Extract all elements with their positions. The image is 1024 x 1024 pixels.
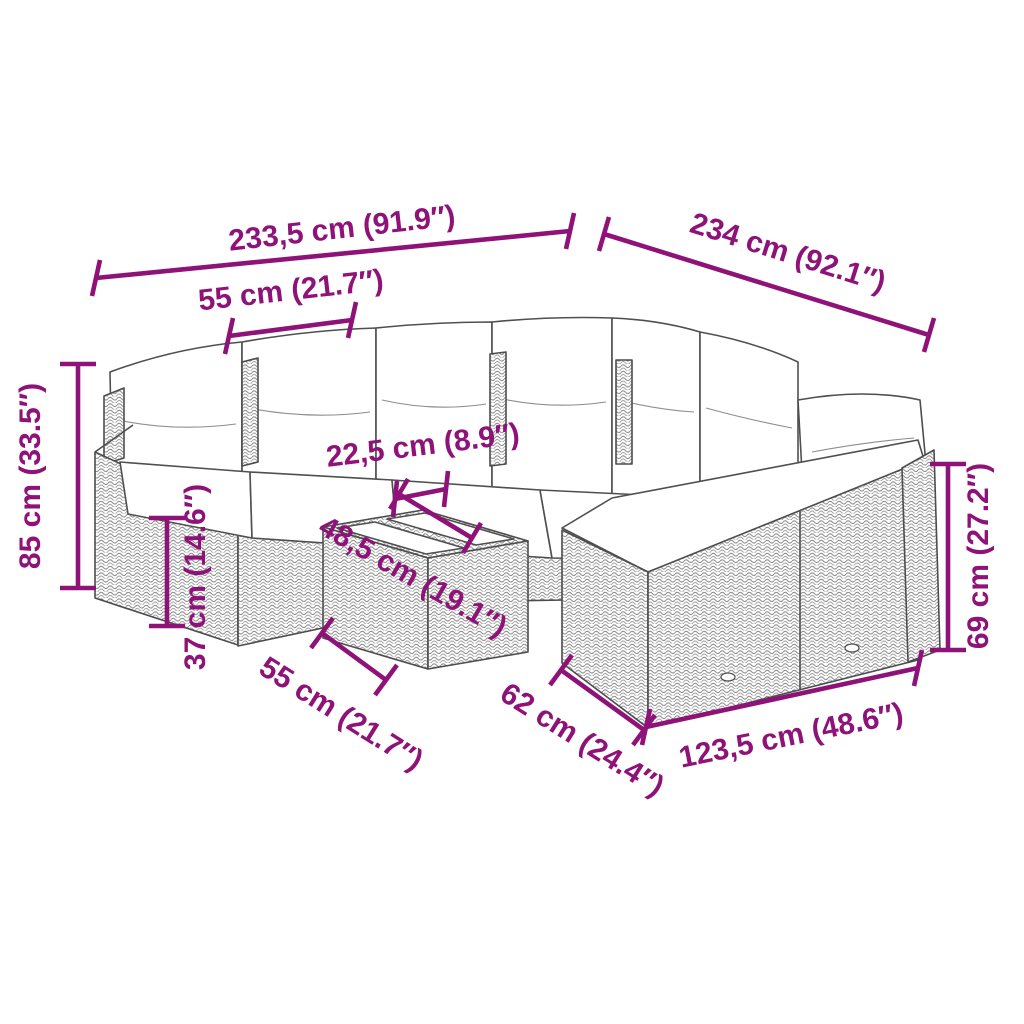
back-cushion	[110, 342, 242, 480]
diagram-svg: 233,5 cm (91.9″) 234 cm (92.1″) 55 cm (2…	[0, 0, 1024, 1024]
dim-overall-height: 85 cm (33.5″)	[14, 364, 96, 588]
product-dimension-diagram: 233,5 cm (91.9″) 234 cm (92.1″) 55 cm (2…	[0, 0, 1024, 1024]
dim-overall-height-label: 85 cm (33.5″)	[14, 383, 47, 569]
dim-overall-width-label: 233,5 cm (91.9″)	[227, 199, 457, 257]
right-arm-post	[902, 450, 940, 662]
dim-backrest-height-label: 69 cm (27.2″)	[962, 463, 995, 649]
dim-seat-height-label: 37 cm (14.6″)	[179, 484, 212, 670]
dim-seat-width-label: 55 cm (21.7″)	[197, 264, 386, 318]
sofa-illustration	[95, 318, 940, 729]
dim-table-width-label: 55 cm (21.7″)	[253, 651, 428, 778]
frame-post	[104, 388, 124, 464]
back-cushion	[492, 318, 612, 499]
frame-post	[242, 358, 258, 466]
dim-overall-depth-label: 234 cm (92.1″)	[686, 207, 889, 299]
frame-post	[616, 360, 632, 464]
